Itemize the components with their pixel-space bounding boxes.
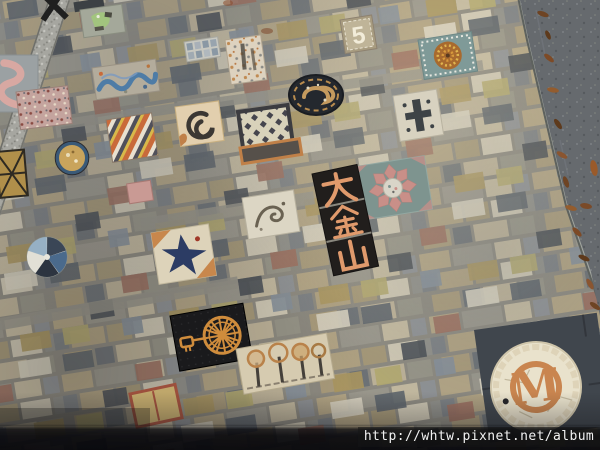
watermark-url: http://whtw.pixnet.net/album (358, 427, 600, 447)
speckled-pink-tile (16, 86, 72, 130)
cross-tile (393, 89, 444, 141)
origami-crane-tile (151, 224, 216, 284)
amber-glass-medallion (55, 141, 89, 175)
dark-spiral-emblem (289, 75, 343, 115)
green-paint-tile (80, 4, 125, 38)
brush-swirl-tile (175, 101, 224, 147)
number-5-tile: 5 (340, 15, 377, 54)
corner-shadow (0, 408, 150, 434)
gold-lattice-tile (0, 150, 28, 198)
pavement-scene: 5 (0, 0, 600, 450)
dragon-sketch-tile (242, 190, 300, 240)
mosaic-pavement-photo: 5 (0, 0, 600, 450)
sun-dot-mosaic (418, 32, 478, 80)
speckled-marble-tile (225, 35, 267, 85)
striped-tile (106, 113, 158, 163)
small-pink-tile (127, 180, 154, 204)
